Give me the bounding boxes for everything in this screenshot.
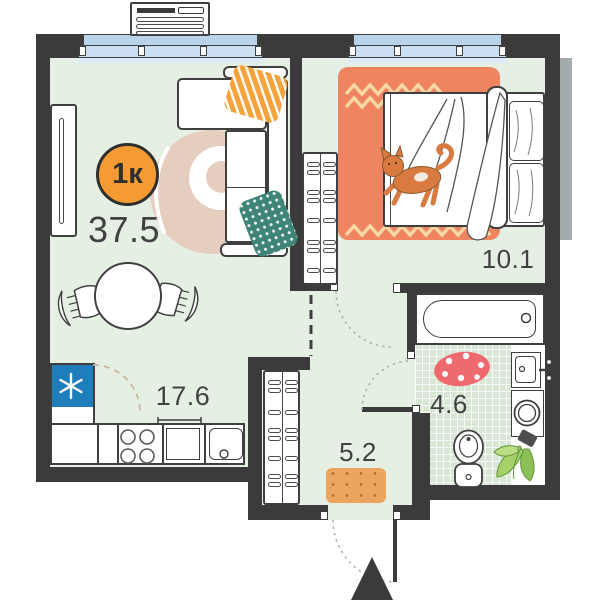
- door-swing-arc-entrance: [333, 520, 395, 582]
- stove-burners: [121, 430, 154, 463]
- dining-table: [95, 263, 161, 329]
- counter-bracket: [158, 417, 201, 423]
- bed-pillow-crinkles: [514, 108, 533, 216]
- living-kitchen-area-label: 17.6: [150, 381, 216, 412]
- kitchen-sink-drain: [220, 450, 228, 458]
- plant: [494, 429, 538, 481]
- detail-layer: [0, 0, 600, 600]
- hallway-area-label: 5.2: [330, 437, 386, 468]
- bed-duvet-drape: [467, 93, 505, 240]
- washing-machine-drum: [515, 401, 540, 426]
- total-area-label: 37.5: [84, 209, 164, 251]
- snowflake-icon: [61, 374, 82, 398]
- bath-rug: [432, 349, 492, 390]
- bedroom-area-label: 10.1: [480, 244, 536, 275]
- entrance-arrow-icon: [351, 557, 393, 600]
- bathtub-drain: [522, 314, 531, 323]
- door-swing-arc-bedroom: [336, 291, 392, 347]
- fridge-door-swing-arc: [93, 365, 140, 412]
- door-swing-arc-bathroom: [362, 361, 411, 410]
- room-count-badge: 1к: [96, 143, 159, 206]
- toilet: [454, 431, 483, 488]
- washbasin-faucet: [520, 360, 553, 381]
- floor-plan: 1к 37.5 17.6 10.1 5.2 4.6: [0, 0, 600, 600]
- bathroom-area-label: 4.6: [421, 389, 477, 420]
- room-count-badge-label: 1к: [112, 158, 143, 191]
